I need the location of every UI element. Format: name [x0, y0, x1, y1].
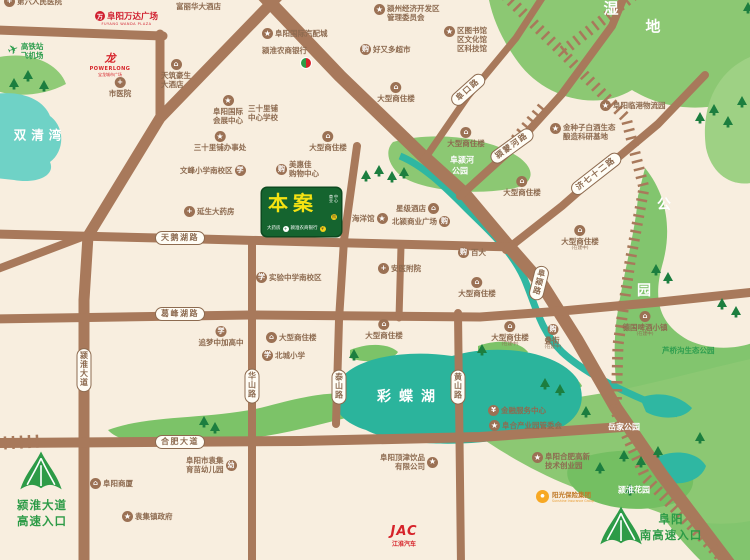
poi-label: 阜阳商厦	[103, 479, 133, 488]
site-marker: 本案商业中心购大药房+颍淮农商银行¥	[262, 188, 341, 236]
sunshine-subtitle: Sunshine Insurance Group	[552, 499, 594, 503]
building-icon: ⌂	[517, 176, 528, 187]
kindergarten-icon: 幼	[226, 460, 237, 471]
poi-label: 大型商住楼(在建中)	[561, 237, 599, 251]
building-icon: ⌂	[266, 332, 277, 343]
poi-label: 百大	[471, 248, 486, 257]
jac-subtitle: 江淮汽车	[390, 539, 417, 548]
star-icon: ★	[532, 452, 543, 463]
map-poi: ★阜合产业园管委会	[489, 420, 562, 431]
area-label: 园	[637, 280, 651, 300]
poi-label: 大型商住楼	[447, 139, 485, 148]
map-poi: 学追梦中加高中	[199, 326, 244, 347]
poi-label: 大型商住楼	[279, 333, 317, 342]
shop-icon: 购	[360, 44, 371, 55]
map-poi: ⌂大型商住楼	[458, 277, 496, 298]
map-poi: 颍淮农商银行	[262, 46, 307, 55]
map-poi: ⌂大型商住楼(在建中)	[491, 321, 529, 347]
star-icon: ★	[377, 213, 388, 224]
map-poi: 购叠街(在建中)	[544, 324, 561, 350]
site-side-icon: 购	[331, 214, 337, 220]
highway-entrance-label: 颍淮大道高速入口	[17, 497, 67, 529]
wanda-title: 阜阳万达广场	[107, 10, 158, 22]
building-icon: ⌂	[90, 478, 101, 489]
map-poi: ⌂大型商住楼	[447, 127, 485, 148]
site-label: 本案	[268, 193, 318, 213]
hospital-icon: +	[115, 77, 126, 88]
area-label: 双清湾	[14, 125, 67, 144]
plane-icon: ✈	[6, 42, 22, 60]
area-label: 地	[645, 16, 660, 37]
poi-label: 袁集镇政府	[135, 512, 173, 521]
map-poi: 学北城小学	[262, 350, 305, 361]
interchange-icon	[598, 505, 644, 547]
poi-label: 大型商住楼	[458, 289, 496, 298]
shop-icon: 购	[439, 216, 450, 227]
poi-label: 阜合产业园管委会	[502, 421, 562, 430]
star-icon: ★	[489, 420, 500, 431]
road-name-pill: 泰山路	[332, 370, 347, 405]
poi-label: 阜阳国际汽配城	[275, 29, 328, 38]
poi-label: 阜阳市袁集育苗幼儿园	[186, 456, 224, 474]
map-poi: 北颍商业广场购	[392, 216, 450, 227]
road-name-pill: 天鹅湖路	[155, 231, 205, 245]
shop-icon: 购	[458, 247, 469, 258]
poi-label: 追梦中加高中	[199, 338, 244, 347]
map-poi: 阜阳市袁集育苗幼儿园幼	[186, 456, 237, 474]
poi-label: 富丽华大酒店	[176, 2, 221, 11]
map-poi: 学实验中学南校区	[256, 272, 322, 283]
poi-label: 德国啤酒小镇(在建中)	[623, 323, 668, 337]
jac-logo: JAC江淮汽车	[390, 524, 417, 548]
shop-icon: 购	[547, 324, 558, 335]
star-icon: ★	[444, 26, 455, 37]
map-poi: 购百大	[458, 247, 486, 258]
poi-label: 北颍商业广场	[392, 217, 437, 226]
map-poi: ★袁集镇政府	[122, 511, 173, 522]
map-poi: ★区图书馆区文化馆区科技馆	[444, 26, 487, 53]
location-map: 湿地双清湾阜颍河公园公园彩蝶湖岳家公园颍淮花园天鹅湖路葛峰湖路合肥大道阜口路颍蒙…	[0, 0, 750, 560]
poi-label: 三十里铺办事处	[194, 143, 247, 152]
poi-label: 美惠佳购物中心	[289, 160, 319, 178]
star-icon: ★	[223, 95, 234, 106]
poi-label: 海洋馆	[352, 214, 375, 223]
star-icon: ★	[215, 131, 226, 142]
poi-label: 三十里铺中心学校	[248, 104, 278, 122]
map-poi: 文峰小学南校区学	[180, 165, 246, 176]
poi-label: 延生大药房	[197, 207, 235, 216]
poi-label: 星级酒店	[396, 204, 426, 213]
map-poi: ⌂大型商住楼	[309, 131, 347, 152]
map-poi: ★阜阳国际汽配城	[262, 28, 328, 39]
poi-label: 大型商住楼	[309, 143, 347, 152]
map-poi: +市医院	[109, 77, 132, 98]
jac-title: JAC	[390, 524, 417, 539]
map-poi: 购美惠佳购物中心	[276, 160, 319, 178]
map-poi: ★阜阳合肥高新技术创业园	[532, 452, 590, 470]
sun-icon	[536, 490, 549, 503]
poi-label: 大型商住楼	[503, 188, 541, 197]
area-label: 岳家公园	[608, 422, 640, 433]
map-poi: ⌂大型商住楼	[266, 332, 317, 343]
map-poi: ⌂大型商住楼	[503, 176, 541, 197]
poi-label: 颍淮农商银行	[262, 46, 307, 55]
star-icon: ★	[122, 511, 133, 522]
map-poi: 阜阳顶津饮品有限公司★	[380, 453, 438, 471]
building-icon: ⌂	[323, 131, 334, 142]
rural-bank-logo-icon	[300, 57, 312, 69]
poi-label: 市医院	[109, 89, 132, 98]
interchange-icon	[18, 450, 64, 492]
road-name-pill: 华山路	[245, 369, 260, 404]
poi-label: 金融服务中心	[501, 406, 546, 415]
poi-label: 阜阳国际会展中心	[213, 107, 243, 125]
poi-label: 芦桥沟生态公园	[662, 346, 715, 355]
poi-label: 高铁站飞机场	[21, 42, 44, 60]
building-icon: ⌂	[575, 225, 586, 236]
map-poi: ★阜阳临港物流园	[600, 100, 666, 111]
building-icon: ⌂	[461, 127, 472, 138]
building-icon: ⌂	[428, 203, 439, 214]
map-poi: ⌂阜阳商厦	[90, 478, 133, 489]
map-poi: ✈高铁站飞机场	[8, 42, 43, 60]
area-label: 湿	[603, 0, 618, 19]
map-poi: 海洋馆★	[352, 213, 388, 224]
area-label: 公	[657, 194, 671, 214]
map-poi: +延生大药房	[184, 206, 235, 217]
poi-label: 天筑豪生大酒店	[161, 71, 191, 89]
map-poi: 星级酒店⌂	[396, 203, 439, 214]
poi-label: 大型商住楼(在建中)	[491, 333, 529, 347]
sunshine-title: 阳光保险集团	[552, 489, 594, 499]
poi-label: 颍州经济开发区管理委员会	[387, 4, 440, 22]
school-icon: 学	[235, 165, 246, 176]
poi-label: 实验中学南校区	[269, 273, 322, 282]
map-poi: ⌂大型商住楼(在建中)	[561, 225, 599, 251]
map-poi: ⌂天筑豪生大酒店	[161, 59, 191, 89]
building-icon: ⌂	[379, 319, 390, 330]
poi-label: 阜阳合肥高新技术创业园	[545, 452, 590, 470]
powerlong-logo: 龙POWERLONG宝龙城市广场	[90, 50, 131, 78]
map-poi: ⌂大型商住楼	[365, 319, 403, 340]
school-icon: 学	[216, 326, 227, 337]
poi-label: 阜阳顶津饮品有限公司	[380, 453, 425, 471]
poi-label: 大型商住楼	[365, 331, 403, 340]
site-side-text: 商业中心	[329, 195, 338, 204]
powerlong-icon: 龙	[90, 50, 131, 66]
hospital-icon: +	[4, 0, 15, 7]
poi-label: 北城小学	[275, 351, 305, 360]
sunshine-insurance-logo: 阳光保险集团Sunshine Insurance Group	[536, 489, 594, 503]
road-name-pill: 颍淮大道	[77, 348, 92, 392]
map-poi: 三十里铺中心学校	[248, 104, 278, 122]
area-label: 颍淮花园	[618, 485, 650, 496]
area-label: 阜颍河	[450, 155, 474, 166]
school-icon: 学	[256, 272, 267, 283]
star-icon: ★	[262, 28, 273, 39]
road-name-pill: 合肥大道	[155, 435, 205, 449]
site-bottom-row: 大药房+颍淮农商银行¥	[267, 226, 337, 232]
wanda-subtitle: FUYANG WANDA PLAZA	[95, 22, 158, 26]
building-icon: ⌂	[391, 82, 402, 93]
map-poi: ★阜阳国际会展中心	[213, 95, 243, 125]
map-poi: ★三十里铺办事处	[194, 131, 247, 152]
wanda-icon: 万	[95, 11, 105, 21]
hospital-icon: +	[184, 206, 195, 217]
road-name-pill: 黄山路	[451, 370, 466, 405]
shop-icon: 购	[276, 164, 287, 175]
building-icon: ⌂	[505, 321, 516, 332]
poi-label: 阜阳临港物流园	[613, 101, 666, 110]
building-icon: ⌂	[640, 311, 651, 322]
wanda-plaza-logo: 万阜阳万达广场FUYANG WANDA PLAZA	[95, 10, 158, 26]
poi-label: 大型商住楼	[377, 94, 415, 103]
star-icon: ★	[600, 100, 611, 111]
road-name-pill: 葛峰湖路	[155, 307, 205, 321]
map-poi: +安医附院	[378, 263, 421, 274]
poi-label: 好又多超市	[373, 45, 411, 54]
map-poi: 芦桥沟生态公园	[662, 346, 715, 355]
area-label: 彩蝶湖	[377, 386, 443, 406]
poi-label: 文峰小学南校区	[180, 166, 233, 175]
map-poi: 购好又多超市	[360, 44, 411, 55]
map-poi: ★颍州经济开发区管理委员会	[374, 4, 440, 22]
poi-label: 金种子白酒生态酿造科研基地	[563, 123, 616, 141]
map-poi: ★金种子白酒生态酿造科研基地	[550, 123, 616, 141]
building-icon: ⌂	[472, 277, 483, 288]
star-icon: ★	[427, 457, 438, 468]
bank-icon: ¥	[488, 405, 499, 416]
poi-label: 第六人民医院	[17, 0, 62, 6]
map-poi: ¥金融服务中心	[488, 405, 546, 416]
star-icon: ★	[550, 123, 561, 134]
hotel-icon: ⌂	[171, 59, 182, 70]
school-icon: 学	[262, 350, 273, 361]
hospital-icon: +	[378, 263, 389, 274]
poi-label: 区图书馆区文化馆区科技馆	[457, 26, 487, 53]
poi-label: 安医附院	[391, 264, 421, 273]
map-poi: ⌂德国啤酒小镇(在建中)	[623, 311, 668, 337]
map-poi: 富丽华大酒店	[176, 2, 221, 11]
poi-label: 叠街(在建中)	[544, 336, 561, 350]
map-poi: +第六人民医院	[4, 0, 62, 7]
powerlong-subtitle: 宝龙城市广场	[90, 72, 131, 78]
area-label: 公园	[452, 166, 468, 177]
highway-entrance-label: 阜阳南高速入口	[640, 511, 703, 543]
map-poi: ⌂大型商住楼	[377, 82, 415, 103]
star-icon: ★	[374, 4, 385, 15]
